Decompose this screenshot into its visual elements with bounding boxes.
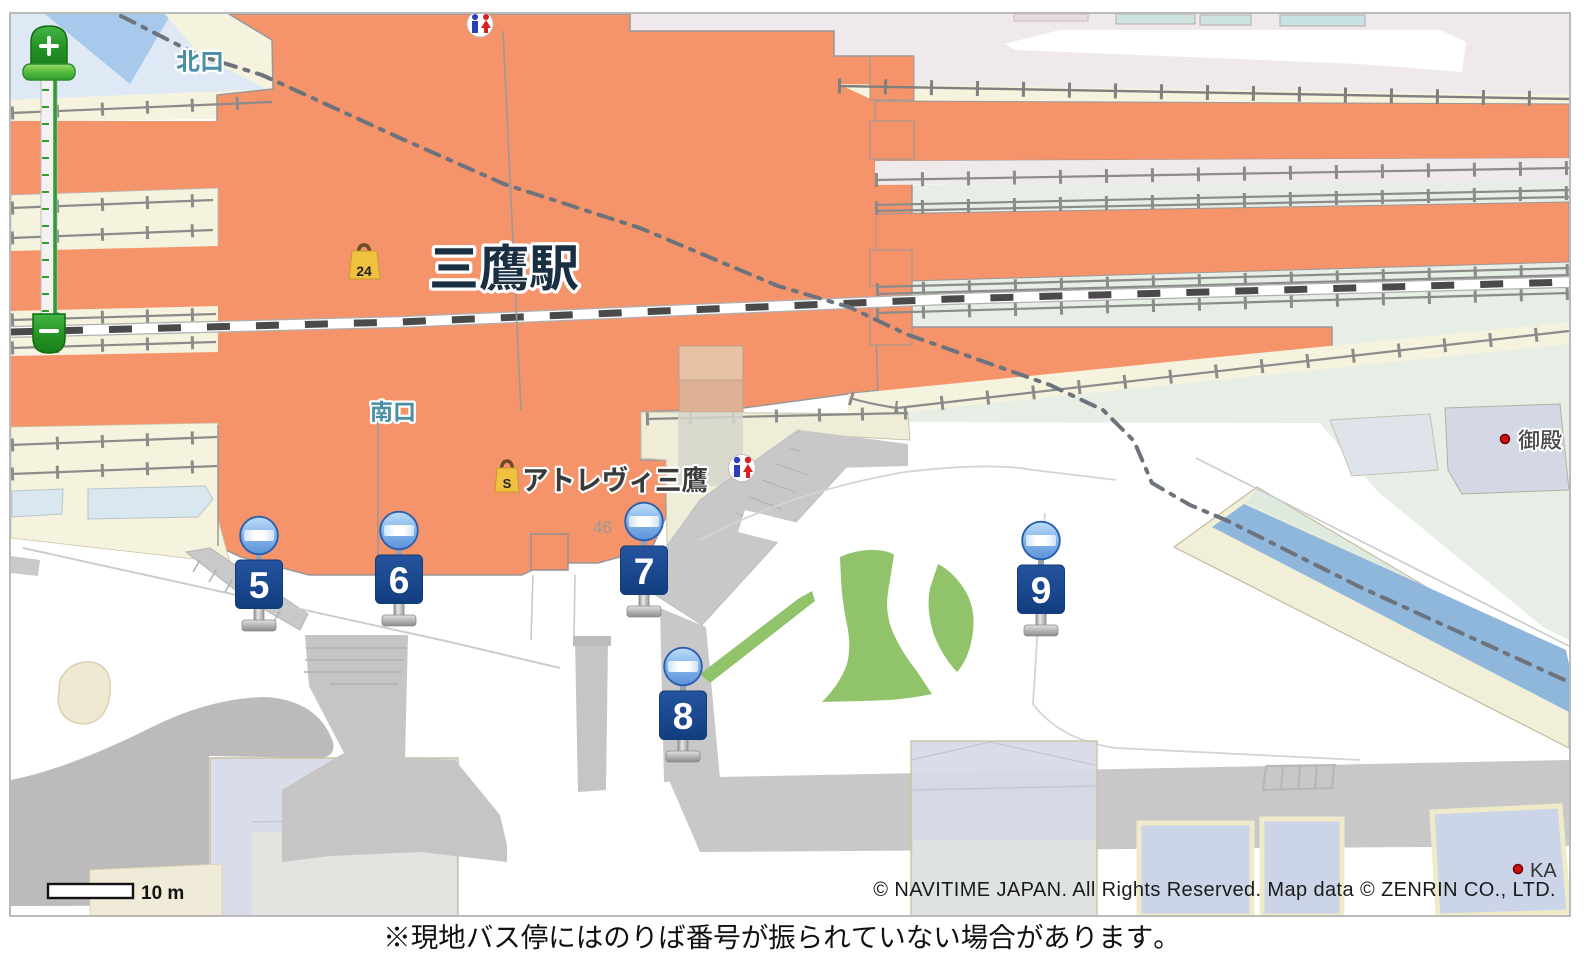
svg-text:7: 7 [634,551,655,592]
svg-text:8: 8 [673,696,694,737]
svg-text:© NAVITIME JAPAN. All Rights R: © NAVITIME JAPAN. All Rights Reserved. M… [873,879,1556,901]
svg-text:10 m: 10 m [141,883,184,904]
svg-text:S: S [503,476,512,491]
svg-text:46: 46 [593,518,612,537]
svg-text:5: 5 [249,565,270,606]
svg-text:6: 6 [389,560,410,601]
svg-text:9: 9 [1031,570,1052,611]
svg-text:24: 24 [356,263,372,279]
